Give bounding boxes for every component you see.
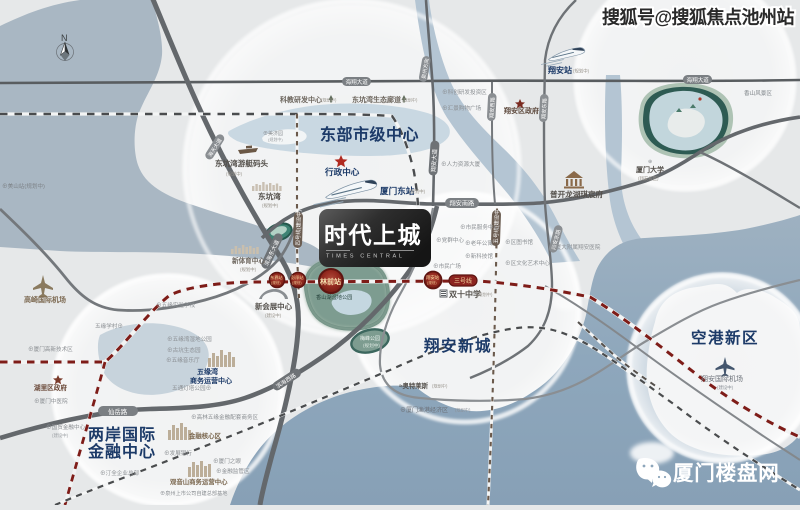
svg-text:时代上城: 时代上城 (324, 222, 422, 248)
svg-text:东坑湾生态廊道: 东坑湾生态廊道 (352, 95, 401, 104)
svg-text:⊕厦门渔港经济区: ⊕厦门渔港经济区 (400, 406, 448, 414)
svg-text:科教研发中心: 科教研发中心 (280, 95, 322, 104)
svg-text:⊕厦门中医院: ⊕厦门中医院 (34, 397, 68, 405)
svg-text:⊕国贸金融中心: ⊕国贸金融中心 (46, 423, 86, 431)
svg-text:翔安区政府: 翔安区政府 (503, 106, 539, 115)
svg-text:(规划中): (规划中) (455, 407, 471, 414)
svg-text:⊕老年公寓: ⊕老年公寓 (465, 239, 493, 247)
svg-text:⊕市民广场: ⊕市民广场 (433, 262, 461, 270)
svg-text:⊕发展银行: ⊕发展银行 (164, 449, 192, 457)
svg-text:两岸国际: 两岸国际 (88, 425, 156, 444)
svg-text:彭厗站: 彭厗站 (291, 274, 304, 281)
svg-text:新会展中心: 新会展中心 (255, 302, 293, 311)
svg-text:海翔大道: 海翔大道 (346, 78, 369, 86)
svg-text:金融中心: 金融中心 (87, 442, 156, 461)
svg-text:(规划): (规划) (292, 280, 302, 285)
svg-text:⊕市民服务中心: ⊕市民服务中心 (460, 223, 500, 231)
svg-text:⊕厦门之眼: ⊕厦门之眼 (213, 457, 241, 465)
svg-text:海翔大道: 海翔大道 (687, 76, 710, 84)
svg-text:(建设中): (建设中) (52, 432, 69, 439)
svg-text:≈奥特莱斯: ≈奥特莱斯 (399, 381, 429, 390)
svg-text:(翔安校区): (翔安校区) (638, 175, 659, 182)
svg-text:香山湖湿地公园: 香山湖湿地公园 (316, 293, 352, 301)
svg-text:⊕区图书馆: ⊕区图书馆 (505, 238, 533, 246)
svg-text:(规划中): (规划中) (432, 383, 448, 390)
svg-text:N: N (61, 33, 68, 43)
svg-text:(建设中): (建设中) (717, 384, 734, 391)
svg-text:观音山商务运营中心: 观音山商务运营中心 (170, 477, 228, 486)
svg-text:金融核心区: 金融核心区 (188, 431, 222, 440)
svg-text:⊕党群中心: ⊕党群中心 (436, 236, 464, 244)
svg-text:翔安国际机场: 翔安国际机场 (701, 374, 743, 383)
svg-text:东界站: 东界站 (270, 274, 283, 281)
svg-text:厦门大学: 厦门大学 (635, 165, 664, 174)
svg-text:东部市级中心: 东部市级中心 (320, 125, 419, 144)
svg-text:翔安站: 翔安站 (426, 274, 440, 281)
svg-text:(规划): (规划) (271, 280, 281, 285)
svg-text:⊕区文化艺术中心: ⊕区文化艺术中心 (505, 259, 550, 267)
svg-text:⊕美山站(规划中): ⊕美山站(规划中) (2, 182, 45, 190)
svg-text:东坑湾游艇码头: 东坑湾游艇码头 (215, 158, 269, 168)
svg-text:(规划中): (规划中) (477, 291, 493, 298)
svg-text:行政中心: 行政中心 (324, 166, 360, 177)
svg-text:⊕人力资源大厦: ⊕人力资源大厦 (441, 160, 481, 168)
svg-text:三号线: 三号线 (454, 277, 472, 285)
svg-text:东坑湾: 东坑湾 (258, 191, 281, 201)
svg-text:五通灯塔公园⊕: 五通灯塔公园⊕ (172, 384, 211, 392)
svg-text:(规划中): (规划中) (226, 171, 243, 178)
svg-text:⊕: ⊕ (648, 159, 652, 165)
svg-text:高崎国际机场: 高崎国际机场 (24, 295, 66, 304)
svg-text:翔安南路: 翔安南路 (450, 200, 476, 208)
svg-text:新体育中心: 新体育中心 (232, 256, 265, 265)
svg-text:翔安新城: 翔安新城 (423, 336, 492, 355)
svg-text:⊕金融监管区: ⊕金融监管区 (216, 467, 250, 475)
svg-text:(规划中): (规划中) (268, 136, 283, 142)
svg-text:(规划中): (规划中) (402, 97, 418, 104)
svg-text:⊕五缘湾湿地公园: ⊕五缘湾湿地公园 (167, 335, 212, 343)
svg-text:(规划): (规划) (427, 280, 437, 285)
svg-text:⊕汀全企业总部: ⊕汀全企业总部 (100, 469, 140, 477)
svg-text:⊕五缘音乐厅: ⊕五缘音乐厅 (166, 356, 200, 364)
svg-text:(规划中): (规划中) (573, 68, 590, 75)
svg-text:仙岳路: 仙岳路 (108, 407, 128, 416)
svg-text:梅峰公园: 梅峰公园 (360, 335, 380, 342)
svg-text:⊕美济园: ⊕美济园 (263, 130, 283, 137)
svg-text:⊕厦大附属翔安医院: ⊕厦大附属翔安医院 (550, 243, 601, 251)
svg-text:翔安站: 翔安站 (547, 65, 572, 75)
svg-text:⊕汇景购物广场: ⊕汇景购物广场 (442, 104, 482, 112)
svg-text:香山风景区: 香山风景区 (744, 89, 772, 97)
svg-text:普开龙湖琪宸府: 普开龙湖琪宸府 (550, 189, 604, 199)
svg-text:(规划中): (规划中) (321, 97, 337, 104)
svg-text:湖里区政府: 湖里区政府 (34, 383, 67, 392)
svg-text:(规划中): (规划中) (363, 342, 380, 349)
svg-text:⊕新科技馆: ⊕新科技馆 (465, 252, 493, 260)
svg-text:⊕厦门高新技术区: ⊕厦门高新技术区 (28, 345, 73, 353)
svg-text:空港新区: 空港新区 (691, 328, 759, 347)
svg-text:(规划中): (规划中) (262, 202, 279, 209)
svg-text:⊕五缘实验学校: ⊕五缘实验学校 (156, 301, 196, 309)
svg-text:⊕高林五缘金融配套商务区: ⊕高林五缘金融配套商务区 (191, 413, 259, 421)
svg-text:(规划中): (规划中) (409, 188, 426, 195)
svg-text:⊕泉州上市公司自建总部基地: ⊕泉州上市公司自建总部基地 (160, 489, 227, 497)
svg-text:搜狐号@搜狐焦点池州站: 搜狐号@搜狐焦点池州站 (602, 7, 795, 28)
svg-text:(建设中): (建设中) (265, 312, 282, 319)
svg-text:⊕科创研发投资区: ⊕科创研发投资区 (442, 88, 487, 96)
svg-text:(规划中): (规划中) (240, 266, 257, 273)
svg-text:五缘湾: 五缘湾 (197, 367, 218, 376)
svg-text:商务运营中心: 商务运营中心 (190, 376, 232, 385)
svg-text:厦门楼盘网: 厦门楼盘网 (673, 461, 780, 485)
svg-text:五缘学村⊕: 五缘学村⊕ (95, 322, 123, 330)
svg-text:林前站: 林前站 (320, 277, 341, 286)
svg-text:TIMES CENTRAL: TIMES CENTRAL (326, 254, 405, 260)
svg-text:⊕古坑生态园: ⊕古坑生态园 (167, 346, 201, 354)
